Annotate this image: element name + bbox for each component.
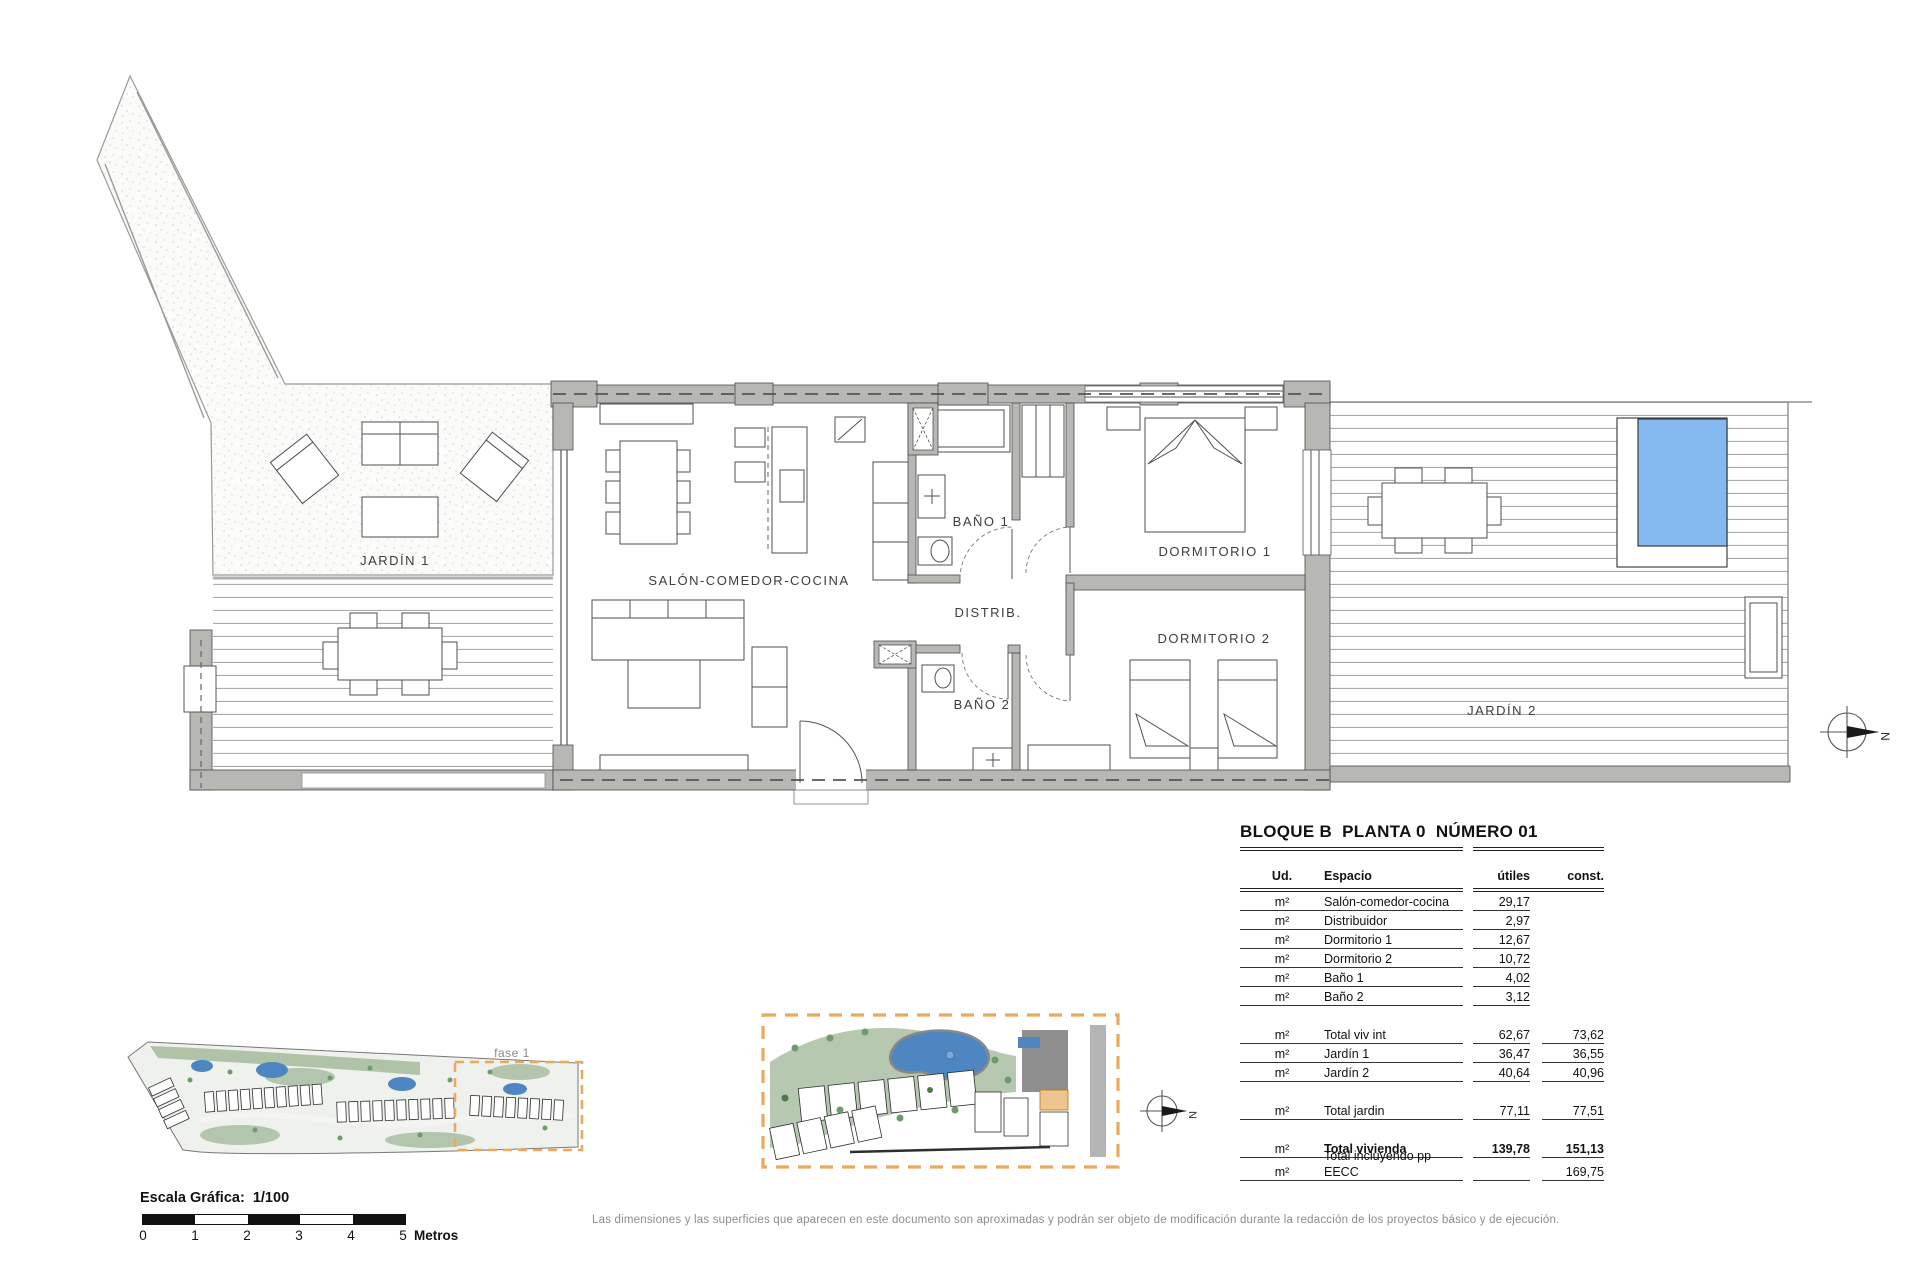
room-label-jardin2: JARDÍN 2: [1467, 703, 1537, 718]
bathroom2-fixtures: [922, 665, 1013, 772]
floorplan-sheet: { "floorplan": { "rooms": { "jardin1": "…: [0, 0, 1920, 1280]
table-row: m²Jardín 2 40,6440,96: [1240, 1063, 1604, 1082]
room-label-salon: SALÓN-COMEDOR-COCINA: [648, 573, 849, 588]
salon-kitchen-furniture: [600, 404, 910, 580]
north-compass-plan: N: [1820, 706, 1892, 758]
outdoor-shower-pad: [1745, 597, 1782, 678]
room-label-dormitorio1: DORMITORIO 1: [1158, 544, 1271, 559]
pool: [1617, 418, 1727, 567]
room-label-bano2: BAÑO 2: [954, 697, 1011, 712]
north-letter: N: [1186, 1111, 1198, 1119]
table-row-total-jardin: m²Total jardin 77,1177,51: [1240, 1082, 1604, 1120]
jardin1-gravel-area: [97, 76, 553, 575]
bedroom1-furniture: [1022, 405, 1277, 532]
jardin2-deck: [1330, 402, 1812, 782]
floorplan-drawing: JARDÍN 1 SALÓN-COMEDOR-COCINA BAÑO 1 DIS…: [0, 0, 1920, 1280]
table-row: m²Baño 1 4,02: [1240, 968, 1604, 987]
header-ud: Ud.: [1240, 869, 1324, 883]
bedroom2-furniture: [1028, 660, 1277, 775]
north-compass-site: N: [1140, 1090, 1198, 1132]
room-label-jardin1: JARDÍN 1: [360, 553, 430, 568]
site-plan-phase1: [763, 1015, 1118, 1167]
table-row: m²Jardín 1 36,4736,55: [1240, 1044, 1604, 1063]
table-row: m²Salón-comedor-cocina 29,17: [1240, 892, 1604, 911]
table-title: BLOQUE B PLANTA 0 NÚMERO 01: [1240, 822, 1604, 842]
highlighted-unit: [1040, 1090, 1068, 1110]
table-row-total-vivint: m²Total viv int 62,6773,62: [1240, 1006, 1604, 1044]
scale-tick: 5: [399, 1228, 407, 1243]
scale-unit: Metros: [414, 1228, 458, 1243]
table-row-total-eecc: m²Total incluyendo pp EECC 169,75: [1240, 1158, 1604, 1181]
vent-shaft-2: [874, 641, 916, 668]
room-label-bano1: BAÑO 1: [953, 514, 1010, 529]
scale-label: Escala Gráfica: 1/100: [140, 1190, 289, 1206]
surface-summary-table: BLOQUE B PLANTA 0 NÚMERO 01 Ud. Espacio …: [1240, 822, 1604, 1181]
header-utiles: útiles: [1473, 869, 1530, 883]
scale-tick: 3: [295, 1228, 303, 1243]
vent-shaft-1: [908, 403, 938, 455]
scale-tick: 0: [139, 1228, 147, 1243]
scale-tick: 4: [347, 1228, 355, 1243]
phase1-label: fase 1: [494, 1046, 530, 1060]
room-label-dormitorio2: DORMITORIO 2: [1157, 631, 1270, 646]
north-arrow: [1162, 1106, 1187, 1116]
header-const: const.: [1542, 869, 1604, 883]
sofa-set: [592, 600, 787, 773]
scale-tick: 2: [243, 1228, 251, 1243]
north-arrow: [1847, 726, 1879, 738]
north-letter: N: [1878, 732, 1892, 741]
table-row: m²Distribuidor 2,97: [1240, 911, 1604, 930]
table-row: m²Dormitorio 2 10,72: [1240, 949, 1604, 968]
disclaimer-text: Las dimensiones y las superficies que ap…: [592, 1214, 1652, 1226]
pool-water: [1638, 419, 1727, 546]
room-label-distrib: DISTRIB.: [955, 605, 1022, 620]
table-header-row: Ud. Espacio útiles const.: [1240, 851, 1604, 888]
table-row: m²Baño 2 3,12: [1240, 987, 1604, 1006]
header-espacio: Espacio: [1324, 869, 1463, 883]
scale-tick: 1: [191, 1228, 199, 1243]
table-row: m²Dormitorio 1 12,67: [1240, 930, 1604, 949]
scale-bar: [142, 1214, 406, 1225]
